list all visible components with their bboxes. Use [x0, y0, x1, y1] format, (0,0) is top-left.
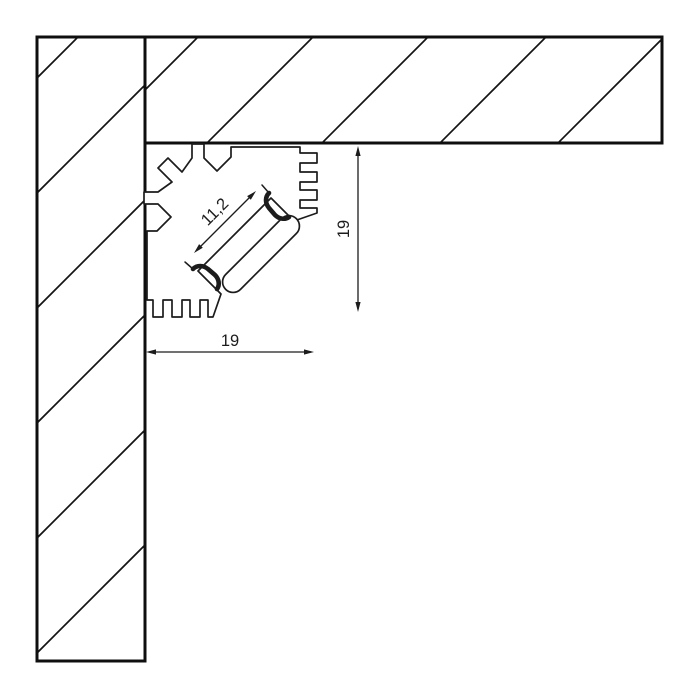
arrowhead-left-icon — [146, 349, 156, 354]
dimension-width-label: 19 — [221, 332, 239, 350]
dimension-height: 19 — [335, 146, 361, 312]
arrowhead-right-icon — [304, 349, 314, 354]
top-wall-section — [82, 27, 674, 153]
left-wall-outline — [37, 37, 145, 661]
dimension-width: 19 — [146, 332, 314, 355]
arrowhead-up-icon — [355, 146, 360, 156]
dimension-height-label: 19 — [335, 220, 353, 238]
technical-drawing-page: 11,2 19 19 — [0, 0, 700, 700]
led-corner-profile — [144, 144, 317, 317]
technical-drawing-canvas: 11,2 19 19 — [0, 0, 700, 700]
left-wall-section — [27, 0, 155, 663]
arrowhead-down-icon — [355, 302, 360, 312]
